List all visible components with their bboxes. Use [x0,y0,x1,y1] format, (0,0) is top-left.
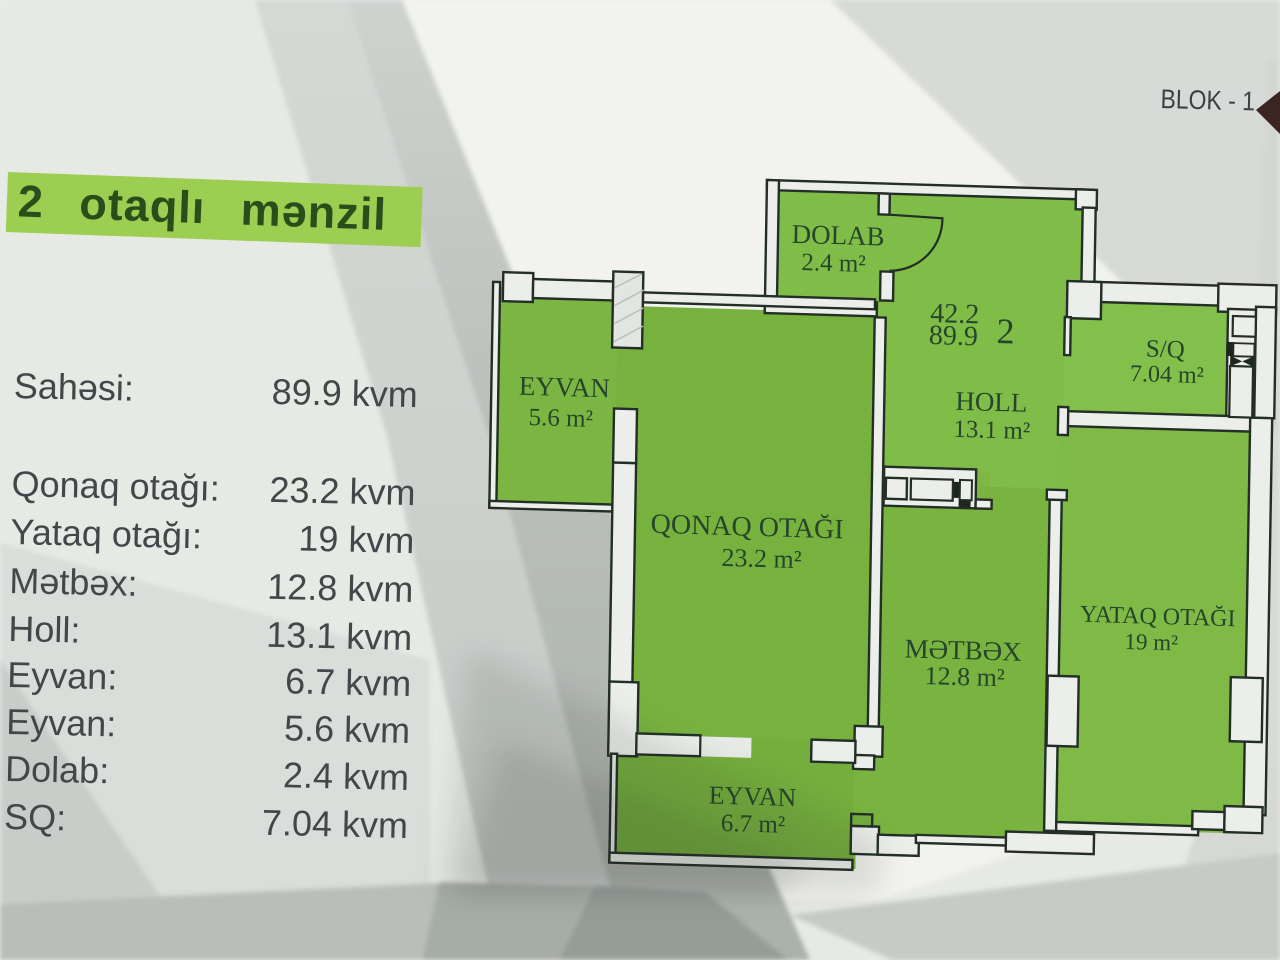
svg-text:QONAQ OTAĞI: QONAQ OTAĞI [650,509,843,546]
svg-text:19 m²: 19 m² [1124,629,1178,656]
svg-text:7.04 m²: 7.04 m² [1130,361,1204,389]
svg-text:23.2 m²: 23.2 m² [721,543,802,574]
svg-text:YATAQ OTAĞI: YATAQ OTAĞI [1080,602,1236,633]
svg-text:5.6 m²: 5.6 m² [528,404,593,433]
svg-text:DOLAB: DOLAB [791,219,884,252]
svg-text:13.1 m²: 13.1 m² [953,416,1030,445]
svg-text:2.4 m²: 2.4 m² [801,249,866,278]
svg-text:89.9: 89.9 [929,320,979,352]
svg-text:2: 2 [996,311,1015,352]
svg-text:S/Q: S/Q [1146,335,1185,363]
svg-text:HOLL: HOLL [955,386,1027,418]
svg-text:EYVAN: EYVAN [519,371,610,404]
svg-text:12.8 m²: 12.8 m² [924,661,1005,692]
